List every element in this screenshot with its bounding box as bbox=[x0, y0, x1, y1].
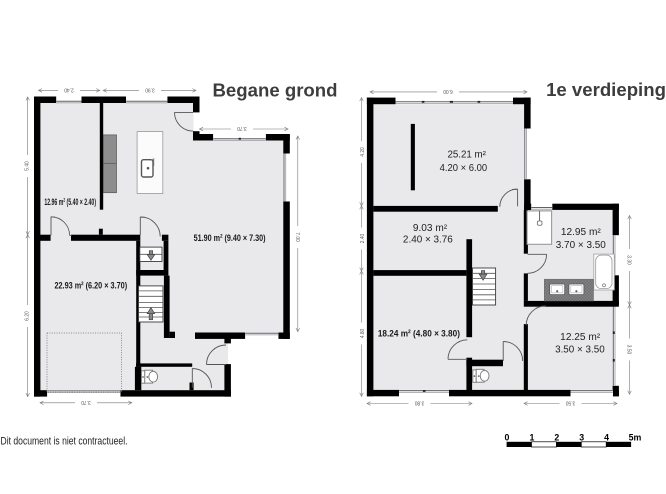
svg-text:3.50: 3.50 bbox=[566, 400, 576, 406]
svg-text:3.90: 3.90 bbox=[145, 87, 155, 93]
svg-text:0: 0 bbox=[505, 432, 510, 442]
svg-text:2.40: 2.40 bbox=[64, 87, 74, 93]
svg-text:6.20: 6.20 bbox=[25, 311, 31, 321]
svg-text:Begane grond: Begane grond bbox=[213, 80, 338, 101]
svg-text:12.96 m² (5.40 × 2.40): 12.96 m² (5.40 × 2.40) bbox=[44, 196, 96, 207]
svg-text:4.20: 4.20 bbox=[360, 147, 366, 157]
svg-text:2.40 × 3.76: 2.40 × 3.76 bbox=[403, 234, 453, 245]
svg-text:12.95 m²: 12.95 m² bbox=[561, 227, 602, 238]
svg-text:3.70: 3.70 bbox=[237, 125, 247, 131]
svg-text:3.50 × 3.50: 3.50 × 3.50 bbox=[555, 344, 605, 355]
svg-text:3.50: 3.50 bbox=[626, 345, 632, 355]
svg-text:51.90 m² (9.40 × 7.30): 51.90 m² (9.40 × 7.30) bbox=[194, 232, 266, 243]
svg-text:3.30: 3.30 bbox=[626, 255, 632, 265]
svg-text:5.40: 5.40 bbox=[25, 161, 31, 171]
svg-text:7.00: 7.00 bbox=[294, 232, 300, 242]
svg-text:Dit document is niet contractu: Dit document is niet contractueel. bbox=[1, 436, 128, 448]
svg-text:5m: 5m bbox=[629, 432, 642, 442]
svg-text:18.24 m² (4.80 × 3.80): 18.24 m² (4.80 × 3.80) bbox=[378, 327, 460, 338]
svg-text:3: 3 bbox=[579, 432, 584, 442]
svg-text:4.80: 4.80 bbox=[360, 329, 366, 339]
svg-text:4.20 × 6.00: 4.20 × 6.00 bbox=[440, 163, 488, 174]
svg-text:1: 1 bbox=[529, 432, 534, 442]
svg-text:3.70 × 3.50: 3.70 × 3.50 bbox=[556, 240, 607, 251]
svg-text:2: 2 bbox=[554, 432, 559, 442]
svg-text:1e verdieping: 1e verdieping bbox=[546, 79, 666, 100]
svg-text:2.40: 2.40 bbox=[360, 234, 366, 244]
svg-text:3.80: 3.80 bbox=[415, 400, 425, 406]
svg-text:12.25 m²: 12.25 m² bbox=[560, 332, 601, 343]
svg-text:9.03 m²: 9.03 m² bbox=[413, 223, 448, 234]
svg-text:3.70: 3.70 bbox=[81, 399, 91, 405]
svg-text:4: 4 bbox=[604, 432, 609, 442]
svg-text:6.00: 6.00 bbox=[443, 88, 453, 94]
svg-text:22.93 m² (6.20 × 3.70): 22.93 m² (6.20 × 3.70) bbox=[54, 279, 127, 290]
svg-text:25.21 m²: 25.21 m² bbox=[447, 150, 486, 161]
